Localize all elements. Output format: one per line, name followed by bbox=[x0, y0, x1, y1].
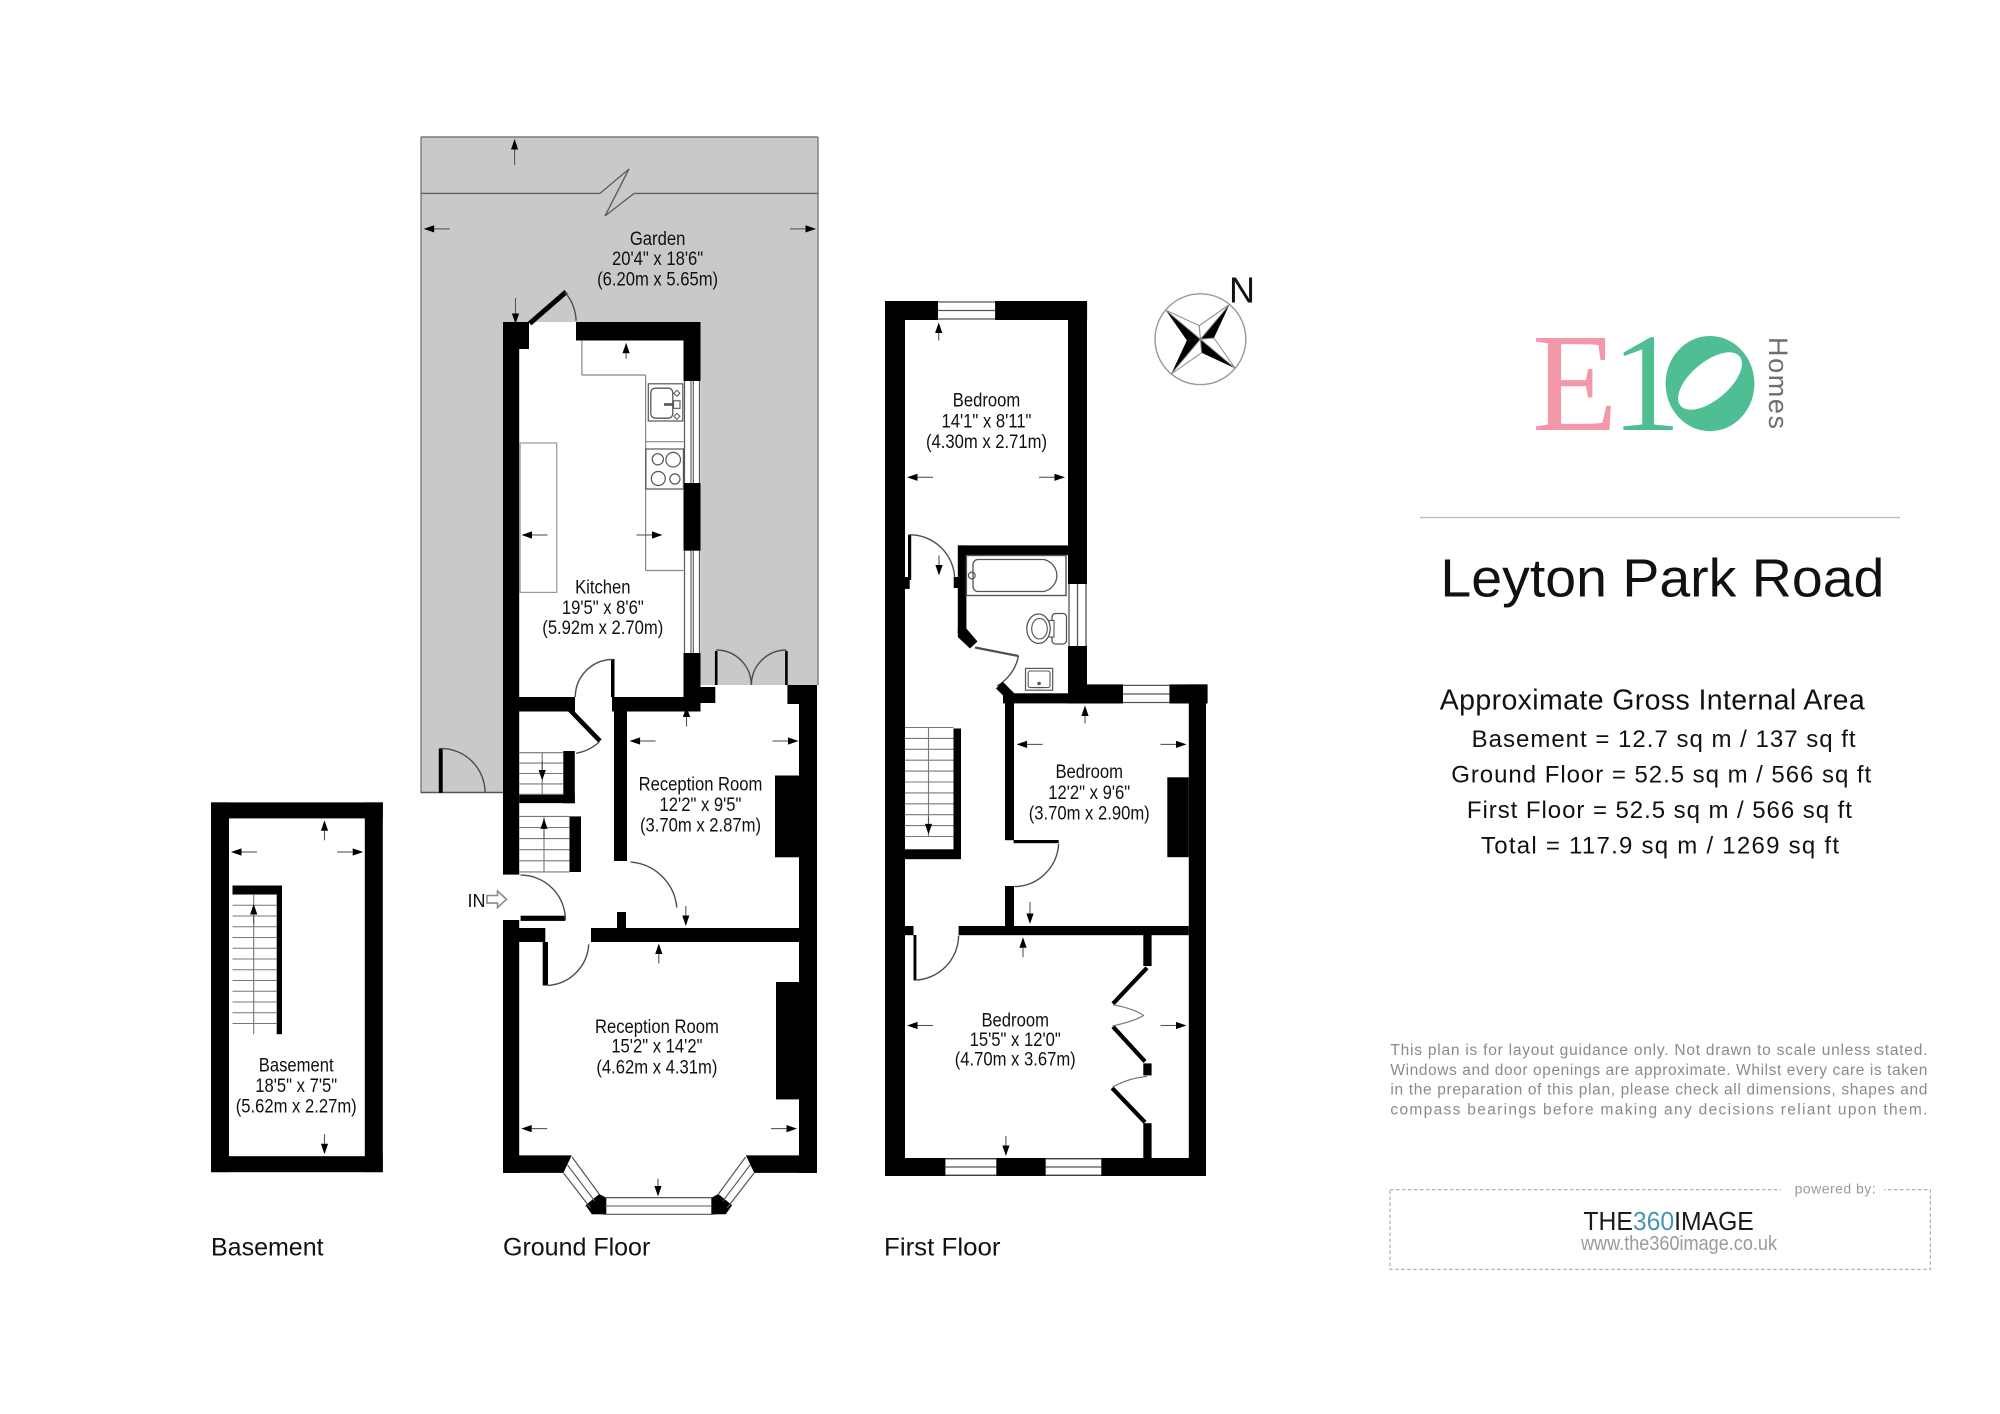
svg-text:Ground Floor = 52.5 sq m / 566: Ground Floor = 52.5 sq m / 566 sq ft bbox=[1451, 761, 1871, 788]
svg-text:(5.92m x 2.70m): (5.92m x 2.70m) bbox=[542, 618, 663, 639]
svg-text:Reception Room: Reception Room bbox=[595, 1017, 719, 1038]
svg-text:15'5" x 12'0": 15'5" x 12'0" bbox=[970, 1030, 1061, 1051]
svg-text:Bedroom: Bedroom bbox=[981, 1011, 1048, 1032]
svg-text:in the preparation of this pla: in the preparation of this plan, please … bbox=[1390, 1082, 1927, 1099]
svg-text:Approximate Gross Internal Are: Approximate Gross Internal Area bbox=[1440, 684, 1865, 716]
svg-text:Basement: Basement bbox=[211, 1234, 324, 1262]
svg-text:(4.30m x 2.71m): (4.30m x 2.71m) bbox=[926, 432, 1047, 453]
svg-text:powered by:: powered by: bbox=[1795, 1181, 1876, 1197]
svg-text:E: E bbox=[1532, 306, 1618, 461]
svg-text:Bedroom: Bedroom bbox=[953, 391, 1020, 412]
svg-text:compass bearings before making: compass bearings before making any decis… bbox=[1390, 1101, 1927, 1118]
svg-text:Reception Room: Reception Room bbox=[639, 775, 763, 796]
svg-text:Homes: Homes bbox=[1763, 337, 1793, 429]
svg-text:12'2" x 9'5": 12'2" x 9'5" bbox=[660, 795, 742, 816]
svg-text:First Floor = 52.5 sq m / 566: First Floor = 52.5 sq m / 566 sq ft bbox=[1467, 797, 1852, 824]
svg-text:Garden: Garden bbox=[630, 229, 685, 250]
svg-text:First Floor: First Floor bbox=[884, 1234, 1001, 1262]
svg-text:(3.70m x 2.87m): (3.70m x 2.87m) bbox=[640, 816, 761, 837]
svg-text:(5.62m x 2.27m): (5.62m x 2.27m) bbox=[236, 1097, 357, 1118]
svg-text:18'5" x 7'5": 18'5" x 7'5" bbox=[255, 1076, 337, 1097]
svg-text:Basement: Basement bbox=[259, 1056, 334, 1077]
svg-text:Bedroom: Bedroom bbox=[1055, 762, 1122, 783]
svg-text:19'5" x 8'6": 19'5" x 8'6" bbox=[562, 598, 644, 619]
svg-text:This plan is for layout guidan: This plan is for layout guidance only. N… bbox=[1390, 1042, 1927, 1059]
svg-text:Kitchen: Kitchen bbox=[575, 578, 630, 599]
svg-text:Basement = 12.7 sq m / 137 sq: Basement = 12.7 sq m / 137 sq ft bbox=[1472, 726, 1856, 753]
svg-text:(3.70m x 2.90m): (3.70m x 2.90m) bbox=[1029, 804, 1150, 825]
svg-text:20'4" x 18'6": 20'4" x 18'6" bbox=[612, 249, 703, 270]
svg-text:www.the360image.co.uk: www.the360image.co.uk bbox=[1580, 1232, 1778, 1255]
svg-text:Total = 117.9 sq m / 1269 sq f: Total = 117.9 sq m / 1269 sq ft bbox=[1481, 832, 1839, 859]
svg-text:N: N bbox=[1229, 270, 1255, 311]
svg-text:(6.20m x 5.65m): (6.20m x 5.65m) bbox=[597, 270, 718, 291]
svg-text:15'2" x 14'2": 15'2" x 14'2" bbox=[611, 1037, 702, 1058]
svg-text:12'2" x 9'6": 12'2" x 9'6" bbox=[1048, 783, 1130, 804]
svg-text:IN: IN bbox=[468, 891, 486, 911]
svg-text:(4.70m x 3.67m): (4.70m x 3.67m) bbox=[955, 1050, 1076, 1071]
svg-text:Ground Floor: Ground Floor bbox=[503, 1234, 650, 1262]
svg-text:14'1" x 8'11": 14'1" x 8'11" bbox=[942, 411, 1032, 432]
svg-text:Leyton Park Road: Leyton Park Road bbox=[1440, 550, 1884, 609]
svg-text:(4.62m x 4.31m): (4.62m x 4.31m) bbox=[596, 1058, 717, 1079]
svg-text:Windows and door openings are: Windows and door openings are approximat… bbox=[1390, 1062, 1927, 1079]
